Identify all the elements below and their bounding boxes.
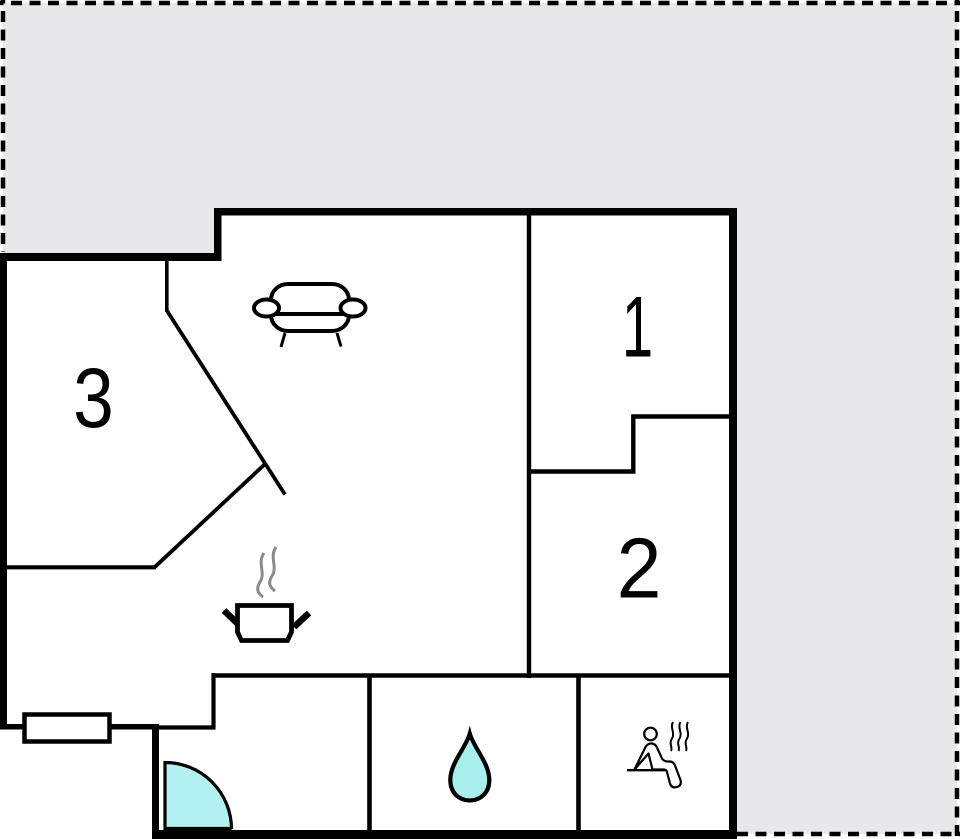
svg-text:3: 3	[73, 350, 114, 445]
svg-text:2: 2	[617, 520, 662, 616]
svg-text:1: 1	[622, 279, 653, 375]
